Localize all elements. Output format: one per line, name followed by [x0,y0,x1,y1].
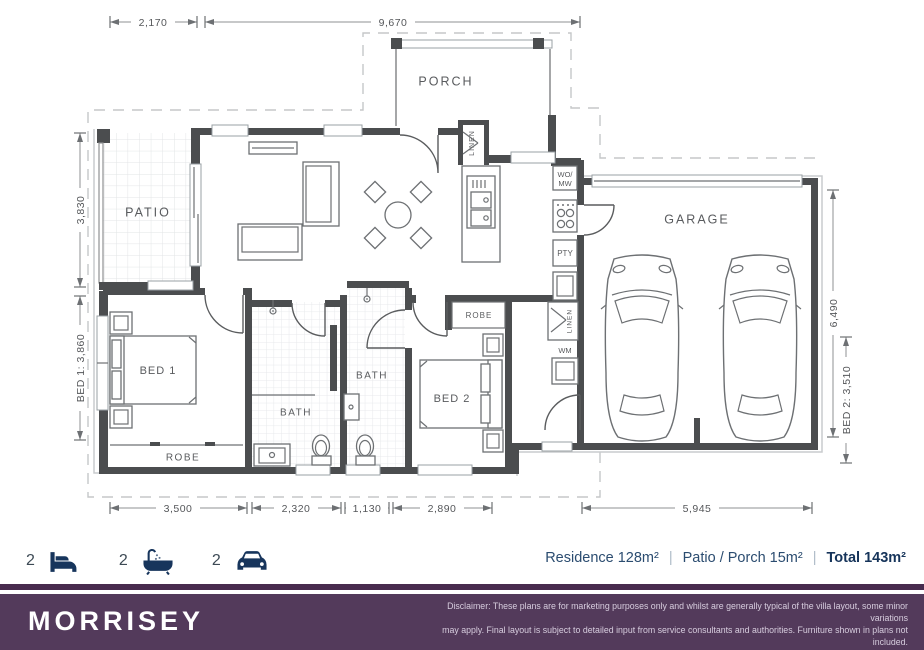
label-bed1: BED 1 [140,365,177,377]
dim-right-bed2: BED 2: 3,510 [841,366,853,434]
kitchen-sink [467,176,495,228]
dim-bottom-4: 2,890 [428,503,457,515]
label-womw-1: WO/ [558,170,574,179]
disclaimer-line: Disclaimer: These plans are for marketin… [416,600,908,624]
vanity-bath1 [254,444,290,466]
vanity-bath2 [344,394,359,420]
feature-stats: 2 2 2 [26,542,271,580]
label-pty: PTY [557,249,573,258]
dim-top-house: 9,670 [379,17,408,29]
car-2 [719,255,801,441]
toilet-bath2 [356,435,375,465]
label-porch: PORCH [418,74,473,88]
dim-bottom-2: 2,320 [282,503,311,515]
label-robe2: ROBE [466,311,493,320]
living-furniture [238,142,432,260]
disclaimer: Disclaimer: These plans are for marketin… [416,600,908,650]
kitchen-garage-door [584,205,614,235]
patio-slider [190,164,201,266]
sofa-horizontal [238,224,302,260]
label-garage: GARAGE [664,212,730,226]
label-robe1: ROBE [166,453,200,464]
bed-icon [47,548,83,575]
label-wm: WM [558,346,571,355]
dim-bottom-5: 5,945 [683,503,712,515]
laundry-garage-door [545,395,580,430]
page: 2,170 9,670 3,830 BED 1: 3,860 6,490 BED… [0,0,924,650]
car-count: 2 [212,552,221,570]
bed-count: 2 [26,552,35,570]
dim-left-patio: 3,830 [75,196,87,225]
robe1-rail [110,442,243,446]
patio-porch-area: Patio / Porch 15m² [683,550,803,566]
stat-cars: 2 [212,548,271,575]
label-bed2: BED 2 [434,393,471,405]
separator: | [669,550,673,566]
bed2-door [413,302,447,336]
cooktop [553,200,577,232]
disclaimer-line: may apply. Final layout is subject to de… [416,624,908,648]
dim-bottom-1: 3,500 [164,503,193,515]
floor-plan: 2,170 9,670 3,830 BED 1: 3,860 6,490 BED… [0,0,924,535]
laundry-door-threshold [542,442,572,451]
stat-beds: 2 [26,548,83,575]
dim-top-patio: 2,170 [139,17,168,29]
bath-count: 2 [119,552,128,570]
dining-set [364,181,431,248]
car-1 [601,255,683,441]
bath-icon [140,548,176,575]
label-patio: PATIO [125,205,171,219]
label-linen2: LINEN [567,309,574,333]
entry-door [400,135,438,173]
label-bath2: BATH [356,371,388,382]
plan-name: MORRISEY [28,606,204,637]
bed2-furniture [420,302,505,452]
dim-bottom-3: 1,130 [353,503,382,515]
total-area: Total 143m² [826,550,906,566]
separator: | [813,550,817,566]
bed1-door [205,295,243,333]
label-bath1: BATH [280,408,312,419]
sofa-vertical [303,162,339,226]
stat-baths: 2 [119,548,176,575]
toilet-bath1 [312,435,331,465]
footer-stripe [0,584,924,590]
washing-machine [552,358,578,384]
dim-left-bed1: BED 1: 3,860 [75,334,87,402]
label-womw-2: MW [558,179,572,188]
dim-right-garage: 6,490 [828,299,840,328]
car-icon [233,548,271,575]
area-summary: Residence 128m² | Patio / Porch 15m² | T… [545,550,906,566]
residence-area: Residence 128m² [545,550,659,566]
label-linen1: LINEN [469,130,476,156]
garage-door [592,175,802,187]
